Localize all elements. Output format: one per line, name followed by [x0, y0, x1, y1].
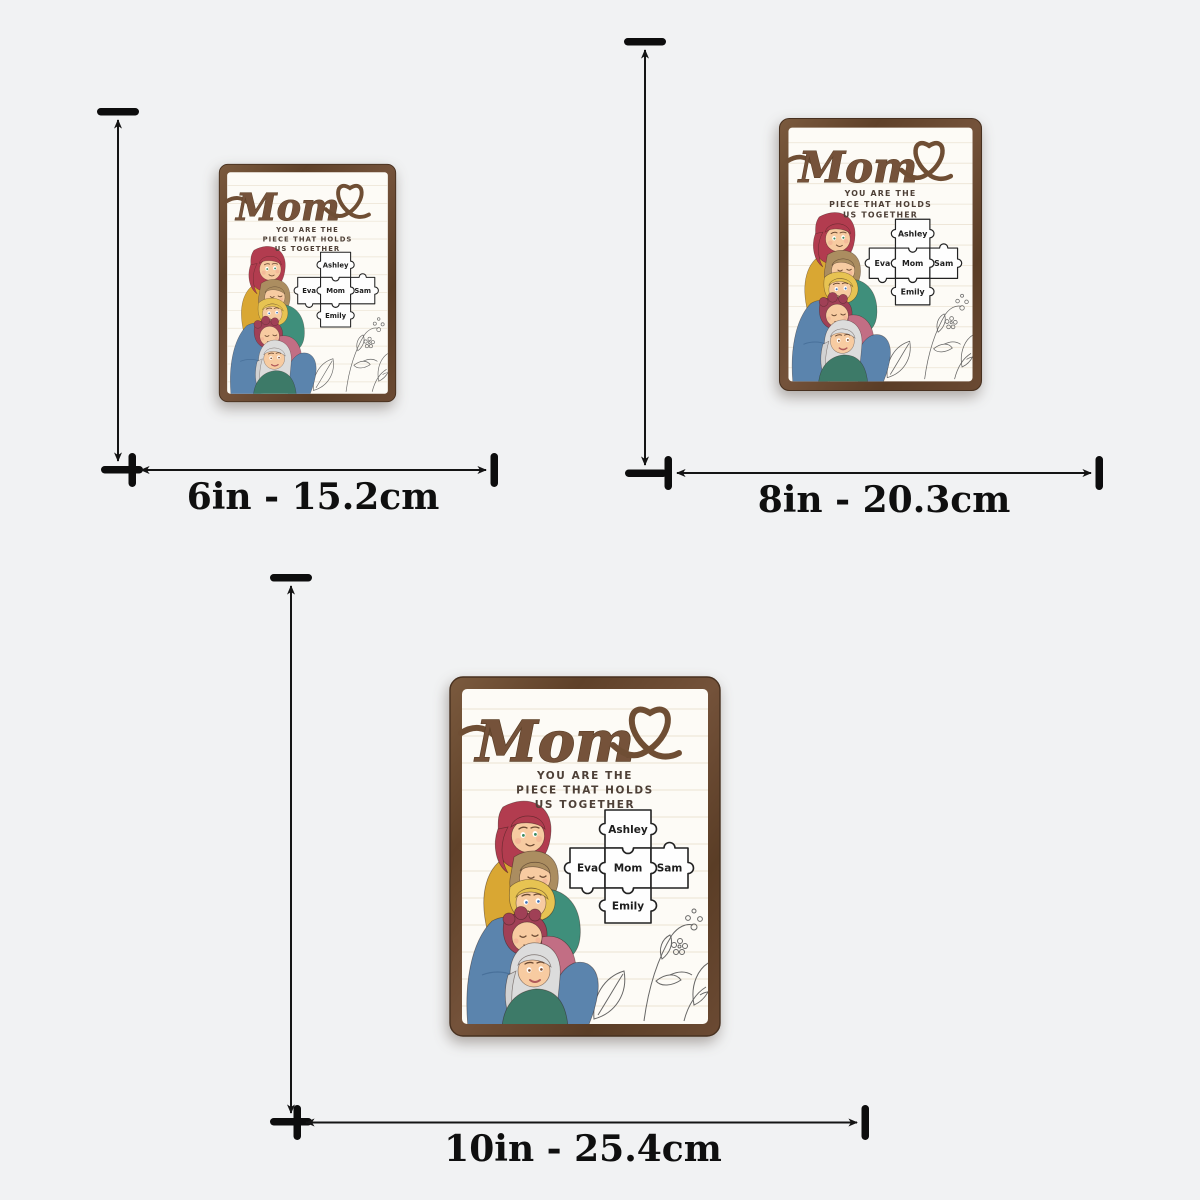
plaque-10in [448, 675, 722, 1038]
plaque-8in [778, 117, 983, 392]
size-chart-canvas: Mom YOU ARE THE PIECE THAT HOLDS US TOGE… [0, 0, 1200, 1200]
size-label-8in: 8in - 20.3cm [758, 479, 1011, 521]
dimension-arrow-6in-height [97, 108, 143, 474]
plaque-6in [218, 163, 397, 403]
size-label-10in: 10in - 25.4cm [444, 1128, 722, 1170]
size-label-6in: 6in - 15.2cm [187, 476, 440, 518]
